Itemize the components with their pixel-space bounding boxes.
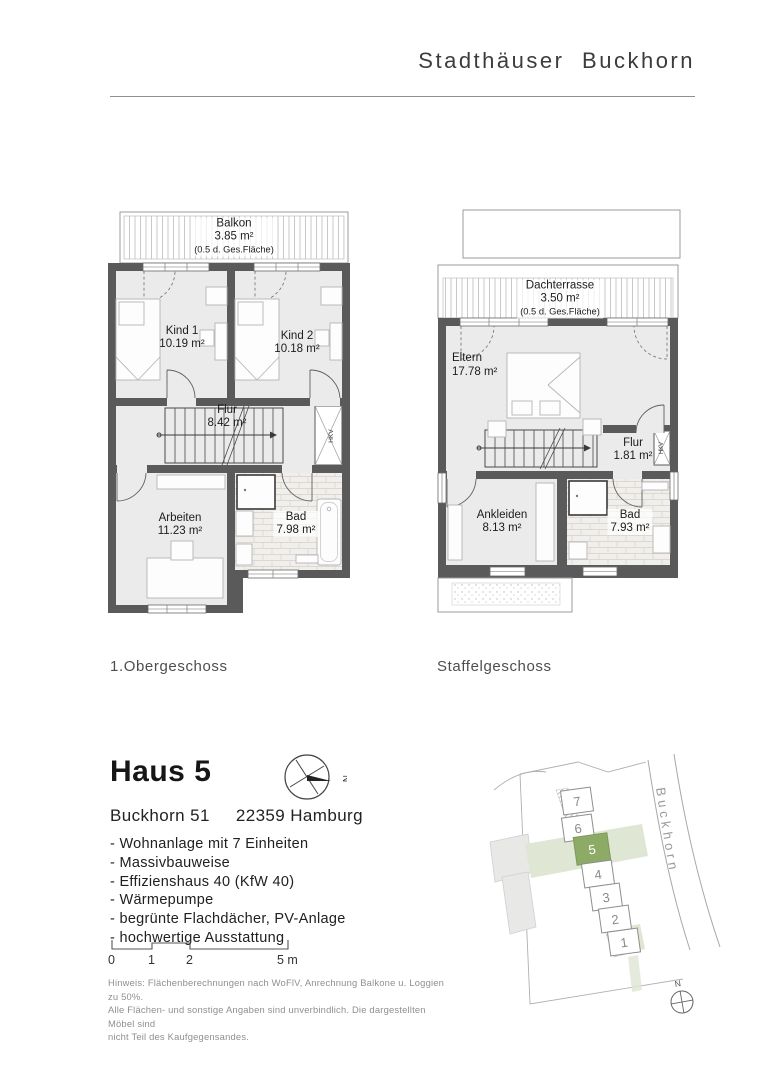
disclaimer-line: nicht Teil des Kaufgegensandes. [108,1030,453,1044]
street-label: Buckhorn [653,786,682,874]
feature-item: - Wohnanlage mit 7 Einheiten [110,835,346,854]
feature-item: - Effizienshaus 40 (KfW 40) [110,873,346,892]
scale-label-1: 1 [148,953,155,967]
address-street: Buckhorn 51 [110,806,210,825]
compass-needle [307,775,331,781]
header-rule [110,96,695,97]
bathtub [317,499,341,565]
hkv-shaft: HKV [654,431,670,465]
label-arbeiten: Arbeiten11.23 m² [158,512,203,538]
feature-item: - Massivbauweise [110,854,346,873]
label-eltern: Eltern17.78 m² [452,352,497,379]
scale-bar: 0 1 2 5 m [110,938,310,972]
address: Buckhorn 5122359 Hamburg [110,806,363,826]
toilet [236,544,252,565]
roof-outline [463,210,680,258]
address-city: 22359 Hamburg [236,806,363,825]
site-house-1: 1 [607,928,640,956]
page-title: Stadthäuser Buckhorn [418,48,695,74]
compass-north-label: N [340,775,347,782]
house-title: Haus 5 [110,755,211,789]
site-houses: 7 6 5 4 3 2 1 [560,787,640,956]
label-kind1: Kind 110.19 m² [159,325,204,351]
sink [569,542,587,559]
label-dachterrasse: Dachterrasse 3.50 m² (0.5 d. Ges.Fläche) [517,280,603,319]
toilet [653,526,670,553]
wall-segment [603,425,636,433]
disclaimer-line: Hinweis: Flächenberechnungen nach WoFlV,… [108,976,453,1003]
feature-item: - Wärmepumpe [110,891,346,910]
floorplan-staffelgeschoss: HKV [432,205,682,615]
label-kind2: Kind 210.18 m² [274,330,319,356]
disclaimer: Hinweis: Flächenberechnungen nach WoFlV,… [108,976,453,1044]
lower-terrace [438,578,572,612]
scale-label-5m: 5 m [277,953,298,967]
label-bad-sg: Bad7.93 m² [608,509,653,535]
shower [569,481,607,515]
label-flur-og: Flur8.42 m² [208,404,247,430]
disclaimer-line: Alle Flächen- und sonstige Angaben sind … [108,1003,453,1030]
site-compass: N [667,976,695,1014]
site-house-2: 2 [598,905,631,933]
site-house-5: 5 [573,833,611,865]
site-map: Buckhorn 7 6 5 4 3 2 1 N [480,742,763,1030]
scale-label-0: 0 [108,953,115,967]
sink [236,511,253,536]
site-house-7: 7 [560,787,593,815]
bed-kind1 [116,299,160,380]
street [648,754,720,950]
radiator [642,482,668,490]
radiator [296,555,318,563]
label-flur-sg: Flur1.81 m² [614,437,653,463]
hkv-shaft: HKV [315,406,342,465]
scale-bar-graphic [110,938,300,952]
wardrobe-arbeiten [157,475,225,489]
bed-kind2 [235,299,279,380]
caption-staffelgeschoss: Staffelgeschoss [437,658,552,675]
label-bad-og: Bad7.98 m² [274,511,319,537]
scale-label-2: 2 [186,953,193,967]
shower [237,475,275,509]
label-ankleiden: Ankleiden8.13 m² [477,509,528,535]
hkv-label: HKV [659,442,665,454]
feature-list: - Wohnanlage mit 7 Einheiten - Massivbau… [110,835,346,948]
page: Stadthäuser Buckhorn HKV [0,0,763,1080]
hkv-label: HKV [328,429,335,443]
caption-obergeschoss: 1.Obergeschoss [110,658,228,675]
feature-item: - begrünte Flachdächer, PV-Anlage [110,910,346,929]
site-house-4: 4 [581,860,614,888]
label-balkon: Balkon 3.85 m² (0.5 d. Ges.Fläche) [191,218,277,257]
compass: N [283,753,347,805]
